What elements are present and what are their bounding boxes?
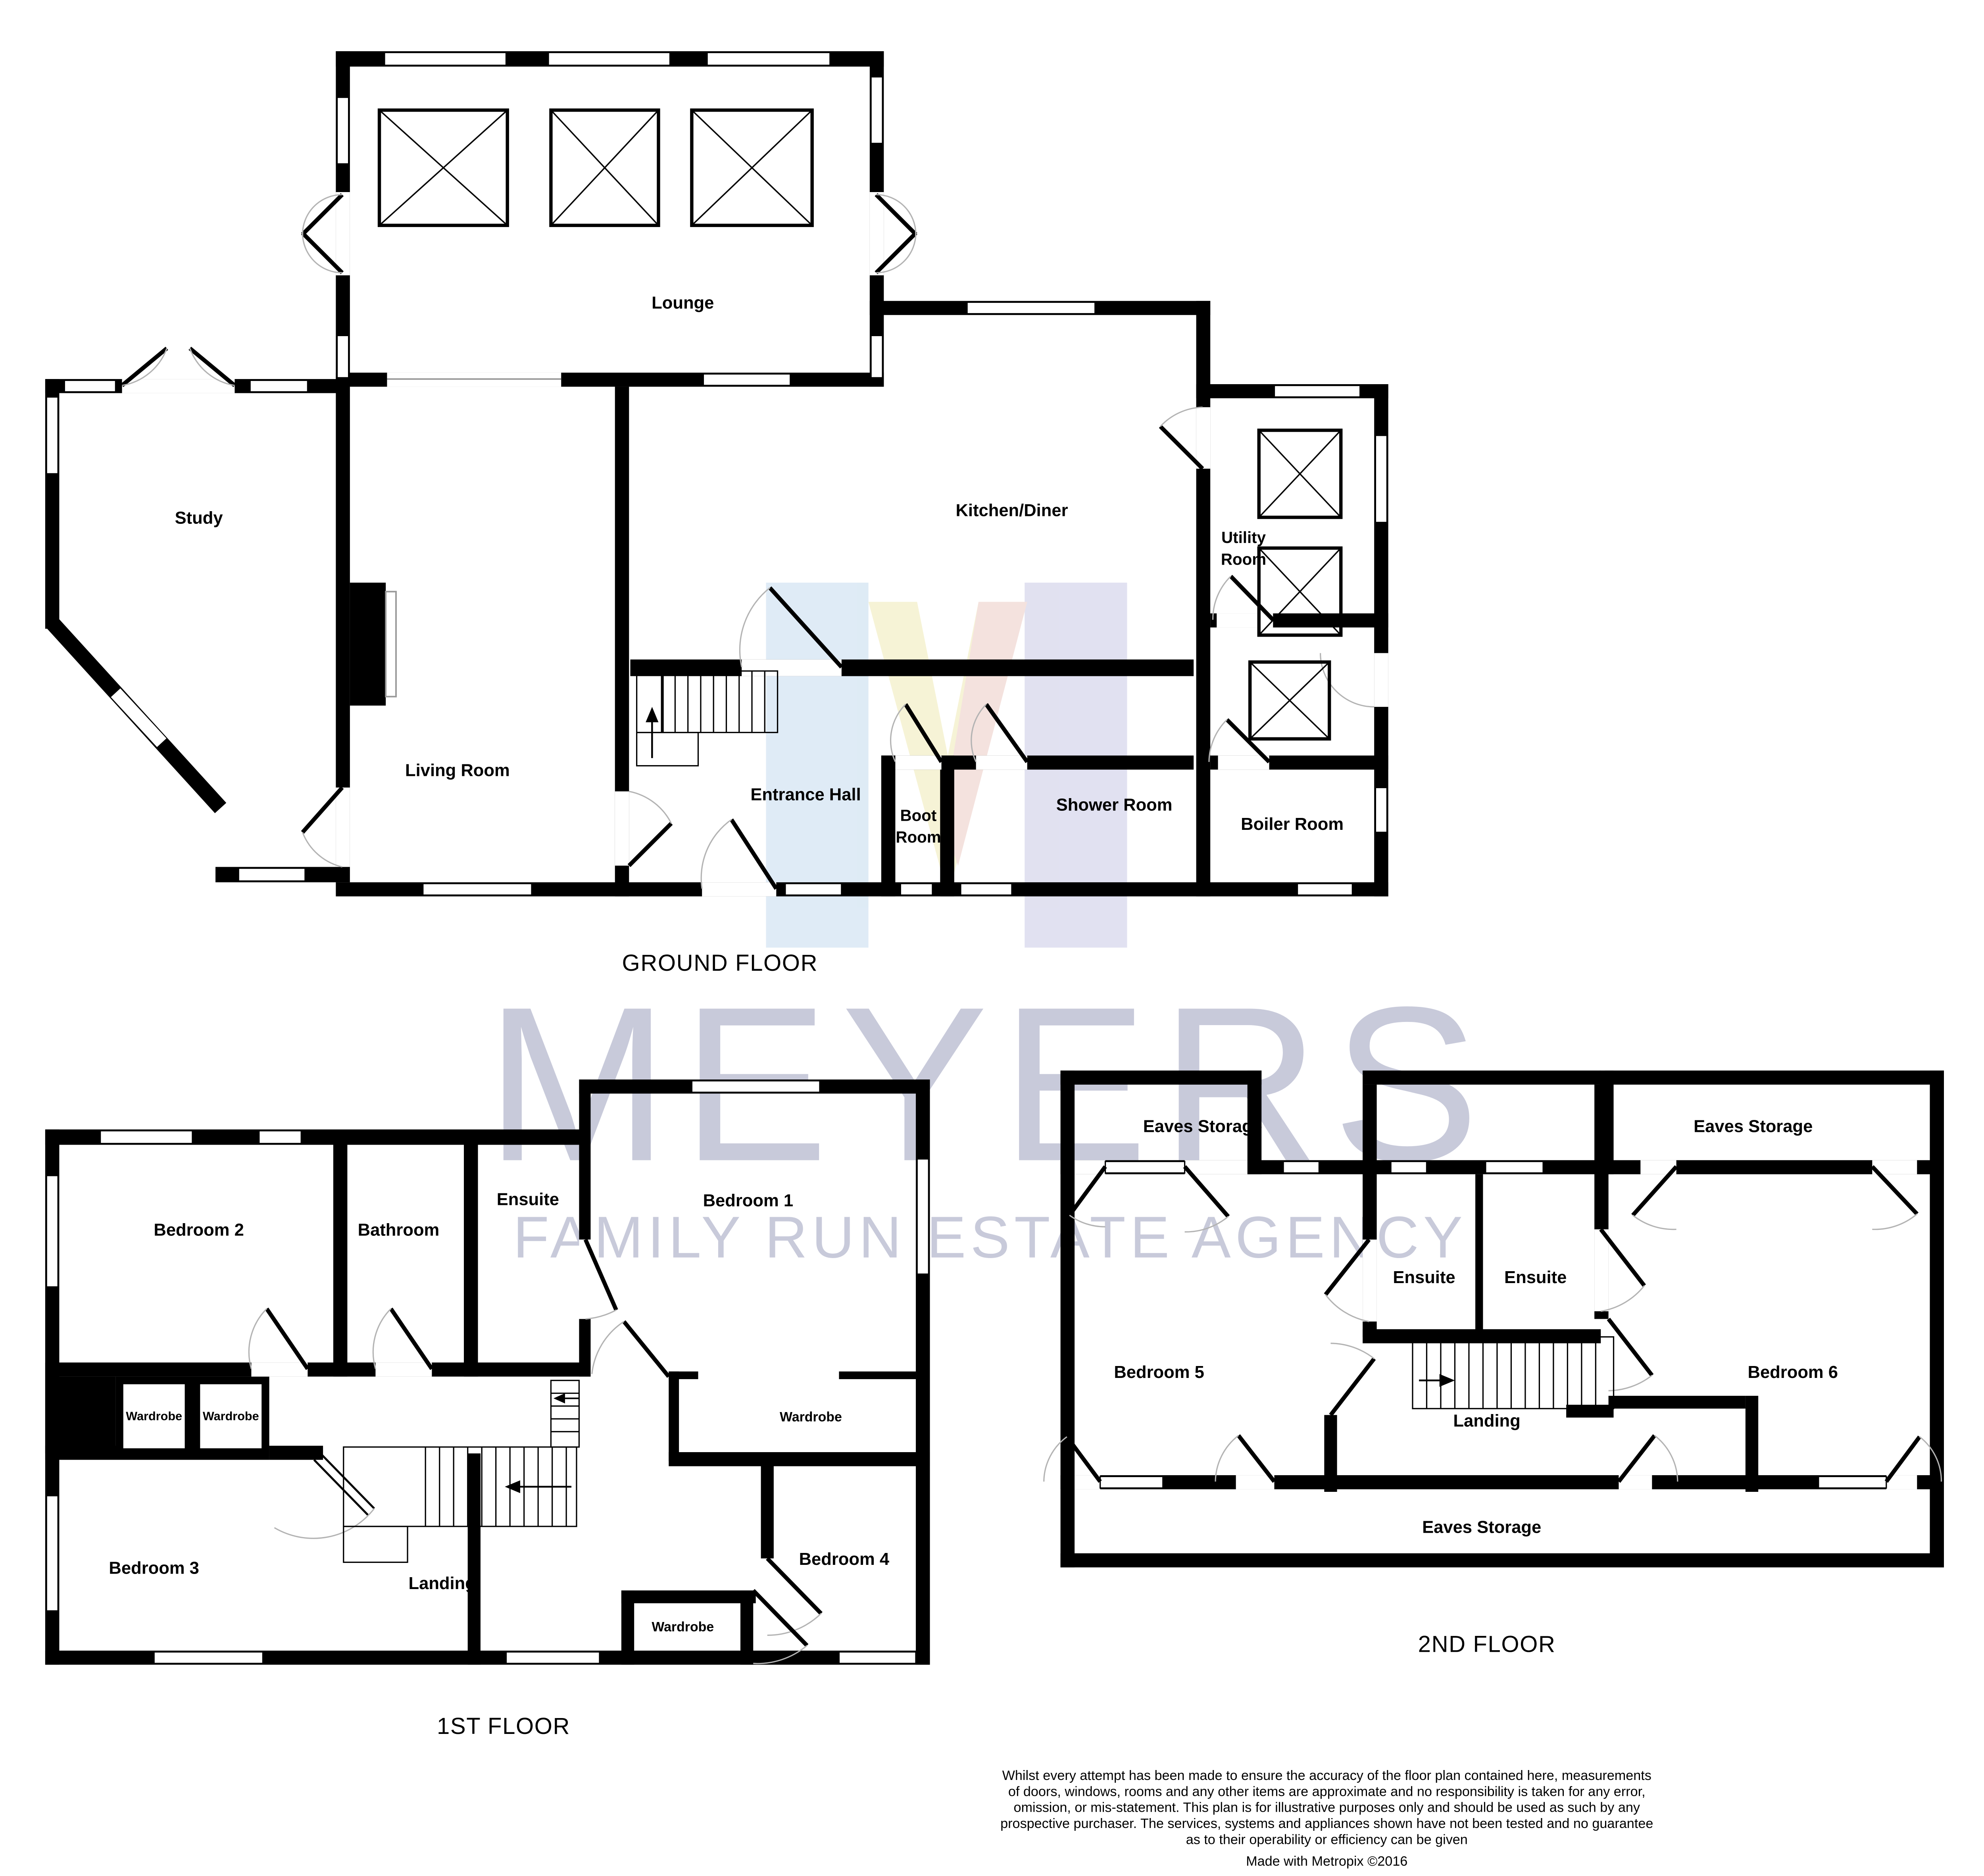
watermark: MEYERS FAMILY RUN ESTATE AGENCY bbox=[485, 961, 1492, 1270]
room-label-landing-1f: Landing bbox=[409, 1574, 476, 1593]
disclaimer-line-4: prospective purchaser. The services, sys… bbox=[1000, 1816, 1653, 1831]
fireplace bbox=[350, 583, 396, 706]
floor-title-first: 1ST FLOOR bbox=[437, 1713, 570, 1739]
room-label-wardrobe-d: Wardrobe bbox=[652, 1620, 714, 1635]
room-label-kitchen-diner: Kitchen/Diner bbox=[955, 501, 1068, 520]
room-label-landing-2f: Landing bbox=[1453, 1411, 1520, 1430]
room-label-ensuite-2f-a: Ensuite bbox=[1393, 1268, 1455, 1287]
room-label-bedroom4: Bedroom 4 bbox=[799, 1550, 889, 1569]
room-label-bedroom3: Bedroom 3 bbox=[109, 1559, 199, 1578]
room-label-wardrobe-b: Wardrobe bbox=[203, 1409, 259, 1423]
ground-floor-doors bbox=[122, 194, 1375, 889]
room-label-wardrobe-a: Wardrobe bbox=[126, 1409, 182, 1423]
staircase-first bbox=[344, 1380, 579, 1562]
room-label-study: Study bbox=[175, 509, 223, 528]
room-label-eaves-bottom: Eaves Storage bbox=[1422, 1518, 1541, 1537]
room-label-eaves-left: Eaves Storage bbox=[1143, 1117, 1262, 1136]
room-label-utility-line2: Room bbox=[1221, 550, 1266, 568]
room-label-boiler-room: Boiler Room bbox=[1241, 815, 1344, 834]
room-label-shower-room: Shower Room bbox=[1056, 795, 1173, 814]
ground-floor-walls bbox=[45, 51, 1388, 897]
ground-floor-plan: Lounge Study Living Room Kitchen/Diner U… bbox=[45, 51, 1388, 976]
staircase-second bbox=[1413, 1337, 1614, 1409]
room-label-bedroom5: Bedroom 5 bbox=[1114, 1363, 1204, 1382]
disclaimer: Whilst every attempt has been made to en… bbox=[1000, 1768, 1653, 1869]
room-label-wardrobe-c: Wardrobe bbox=[780, 1410, 842, 1425]
disclaimer-line-2: of doors, windows, rooms and any other i… bbox=[1008, 1784, 1646, 1799]
room-label-utility-line1: Utility bbox=[1221, 528, 1266, 546]
room-label-bedroom2: Bedroom 2 bbox=[154, 1221, 244, 1240]
skylight-icon bbox=[1250, 662, 1329, 739]
disclaimer-credit: Made with Metropix ©2016 bbox=[1246, 1854, 1407, 1869]
skylight-icon bbox=[692, 110, 812, 225]
disclaimer-line-1: Whilst every attempt has been made to en… bbox=[1002, 1768, 1651, 1783]
stair-direction-arrow-icon bbox=[554, 1393, 579, 1404]
room-label-entrance-hall: Entrance Hall bbox=[750, 785, 861, 804]
room-label-ensuite-2f-b: Ensuite bbox=[1504, 1268, 1567, 1287]
room-label-boot-line1: Boot bbox=[900, 806, 937, 824]
room-label-boot-line2: Room bbox=[896, 828, 941, 846]
stair-direction-arrow-icon bbox=[1419, 1374, 1455, 1387]
room-label-bedroom6: Bedroom 6 bbox=[1748, 1363, 1838, 1382]
room-label-bathroom: Bathroom bbox=[358, 1221, 440, 1240]
staircase-ground bbox=[637, 671, 778, 766]
room-label-bedroom1: Bedroom 1 bbox=[703, 1191, 793, 1210]
room-label-ensuite-1f: Ensuite bbox=[497, 1190, 559, 1209]
skylight-icon bbox=[379, 110, 508, 225]
floorplan-image: MEYERS FAMILY RUN ESTATE AGENCY bbox=[0, 0, 1984, 1876]
floor-title-ground: GROUND FLOOR bbox=[622, 950, 818, 976]
room-label-lounge: Lounge bbox=[652, 294, 714, 313]
floor-title-second: 2ND FLOOR bbox=[1418, 1631, 1556, 1657]
watermark-tagline-text: FAMILY RUN ESTATE AGENCY bbox=[513, 1205, 1467, 1270]
room-label-eaves-right: Eaves Storage bbox=[1694, 1117, 1813, 1136]
disclaimer-line-3: omission, or mis-statement. This plan is… bbox=[1014, 1800, 1640, 1815]
disclaimer-line-5: as to their operability or efficiency ca… bbox=[1186, 1832, 1468, 1847]
skylight-icon bbox=[551, 110, 658, 225]
skylight-icon bbox=[1259, 430, 1341, 517]
room-label-living-room: Living Room bbox=[405, 761, 510, 780]
